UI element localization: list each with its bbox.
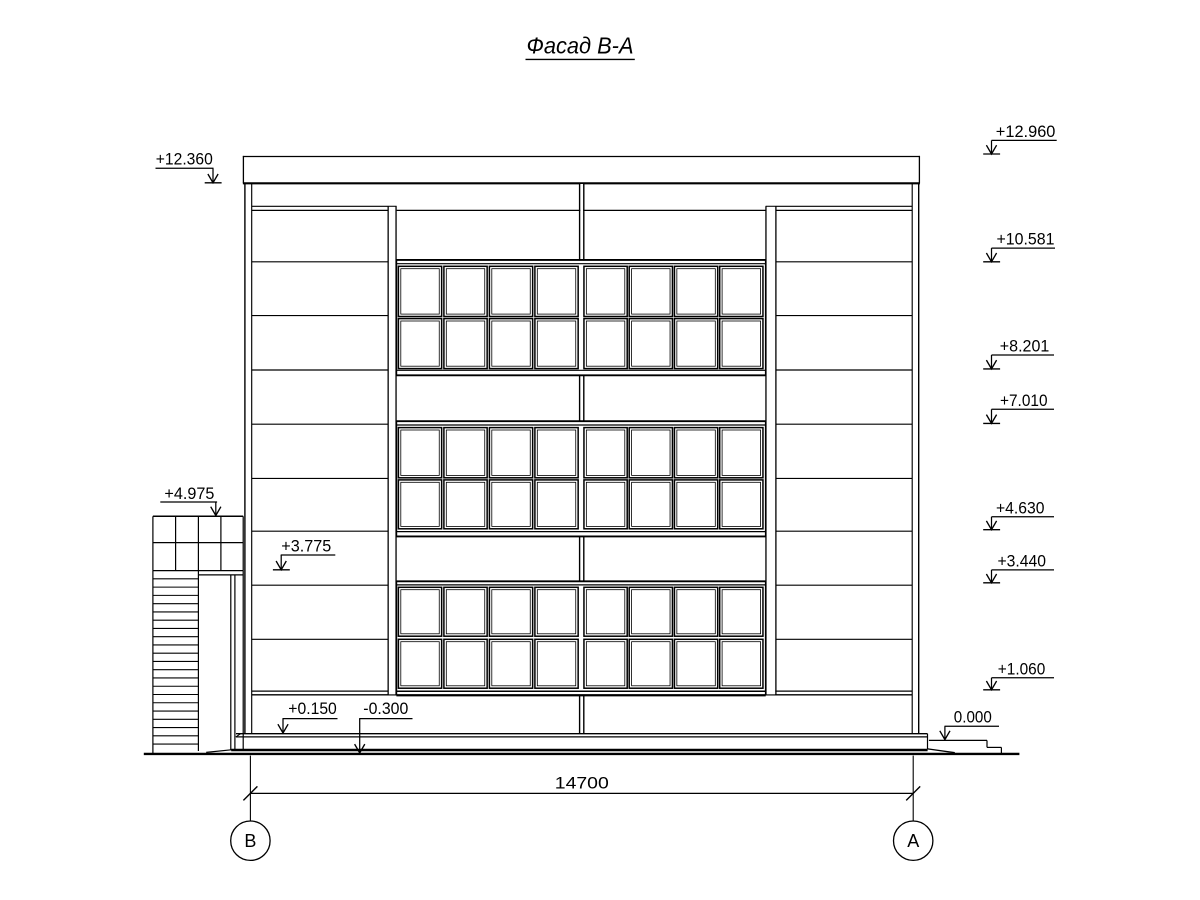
svg-text:+10.581: +10.581 [997, 230, 1055, 249]
svg-text:А: А [907, 831, 919, 851]
svg-text:+0.150: +0.150 [288, 699, 337, 718]
svg-text:+12.960: +12.960 [996, 122, 1056, 141]
svg-text:В: В [244, 831, 256, 851]
svg-text:Фасад В-А: Фасад В-А [527, 33, 634, 59]
svg-text:-0.300: -0.300 [363, 699, 408, 718]
svg-text:+4.630: +4.630 [996, 498, 1045, 517]
svg-text:0.000: 0.000 [954, 707, 992, 726]
svg-text:+3.440: +3.440 [998, 552, 1047, 571]
svg-text:14700: 14700 [555, 774, 609, 793]
svg-text:+7.010: +7.010 [1000, 391, 1048, 410]
svg-text:+3.775: +3.775 [281, 537, 331, 556]
svg-text:+8.201: +8.201 [1000, 336, 1050, 355]
svg-text:+4.975: +4.975 [164, 484, 214, 503]
svg-text:+1.060: +1.060 [998, 659, 1046, 678]
svg-text:+12.360: +12.360 [156, 149, 213, 168]
